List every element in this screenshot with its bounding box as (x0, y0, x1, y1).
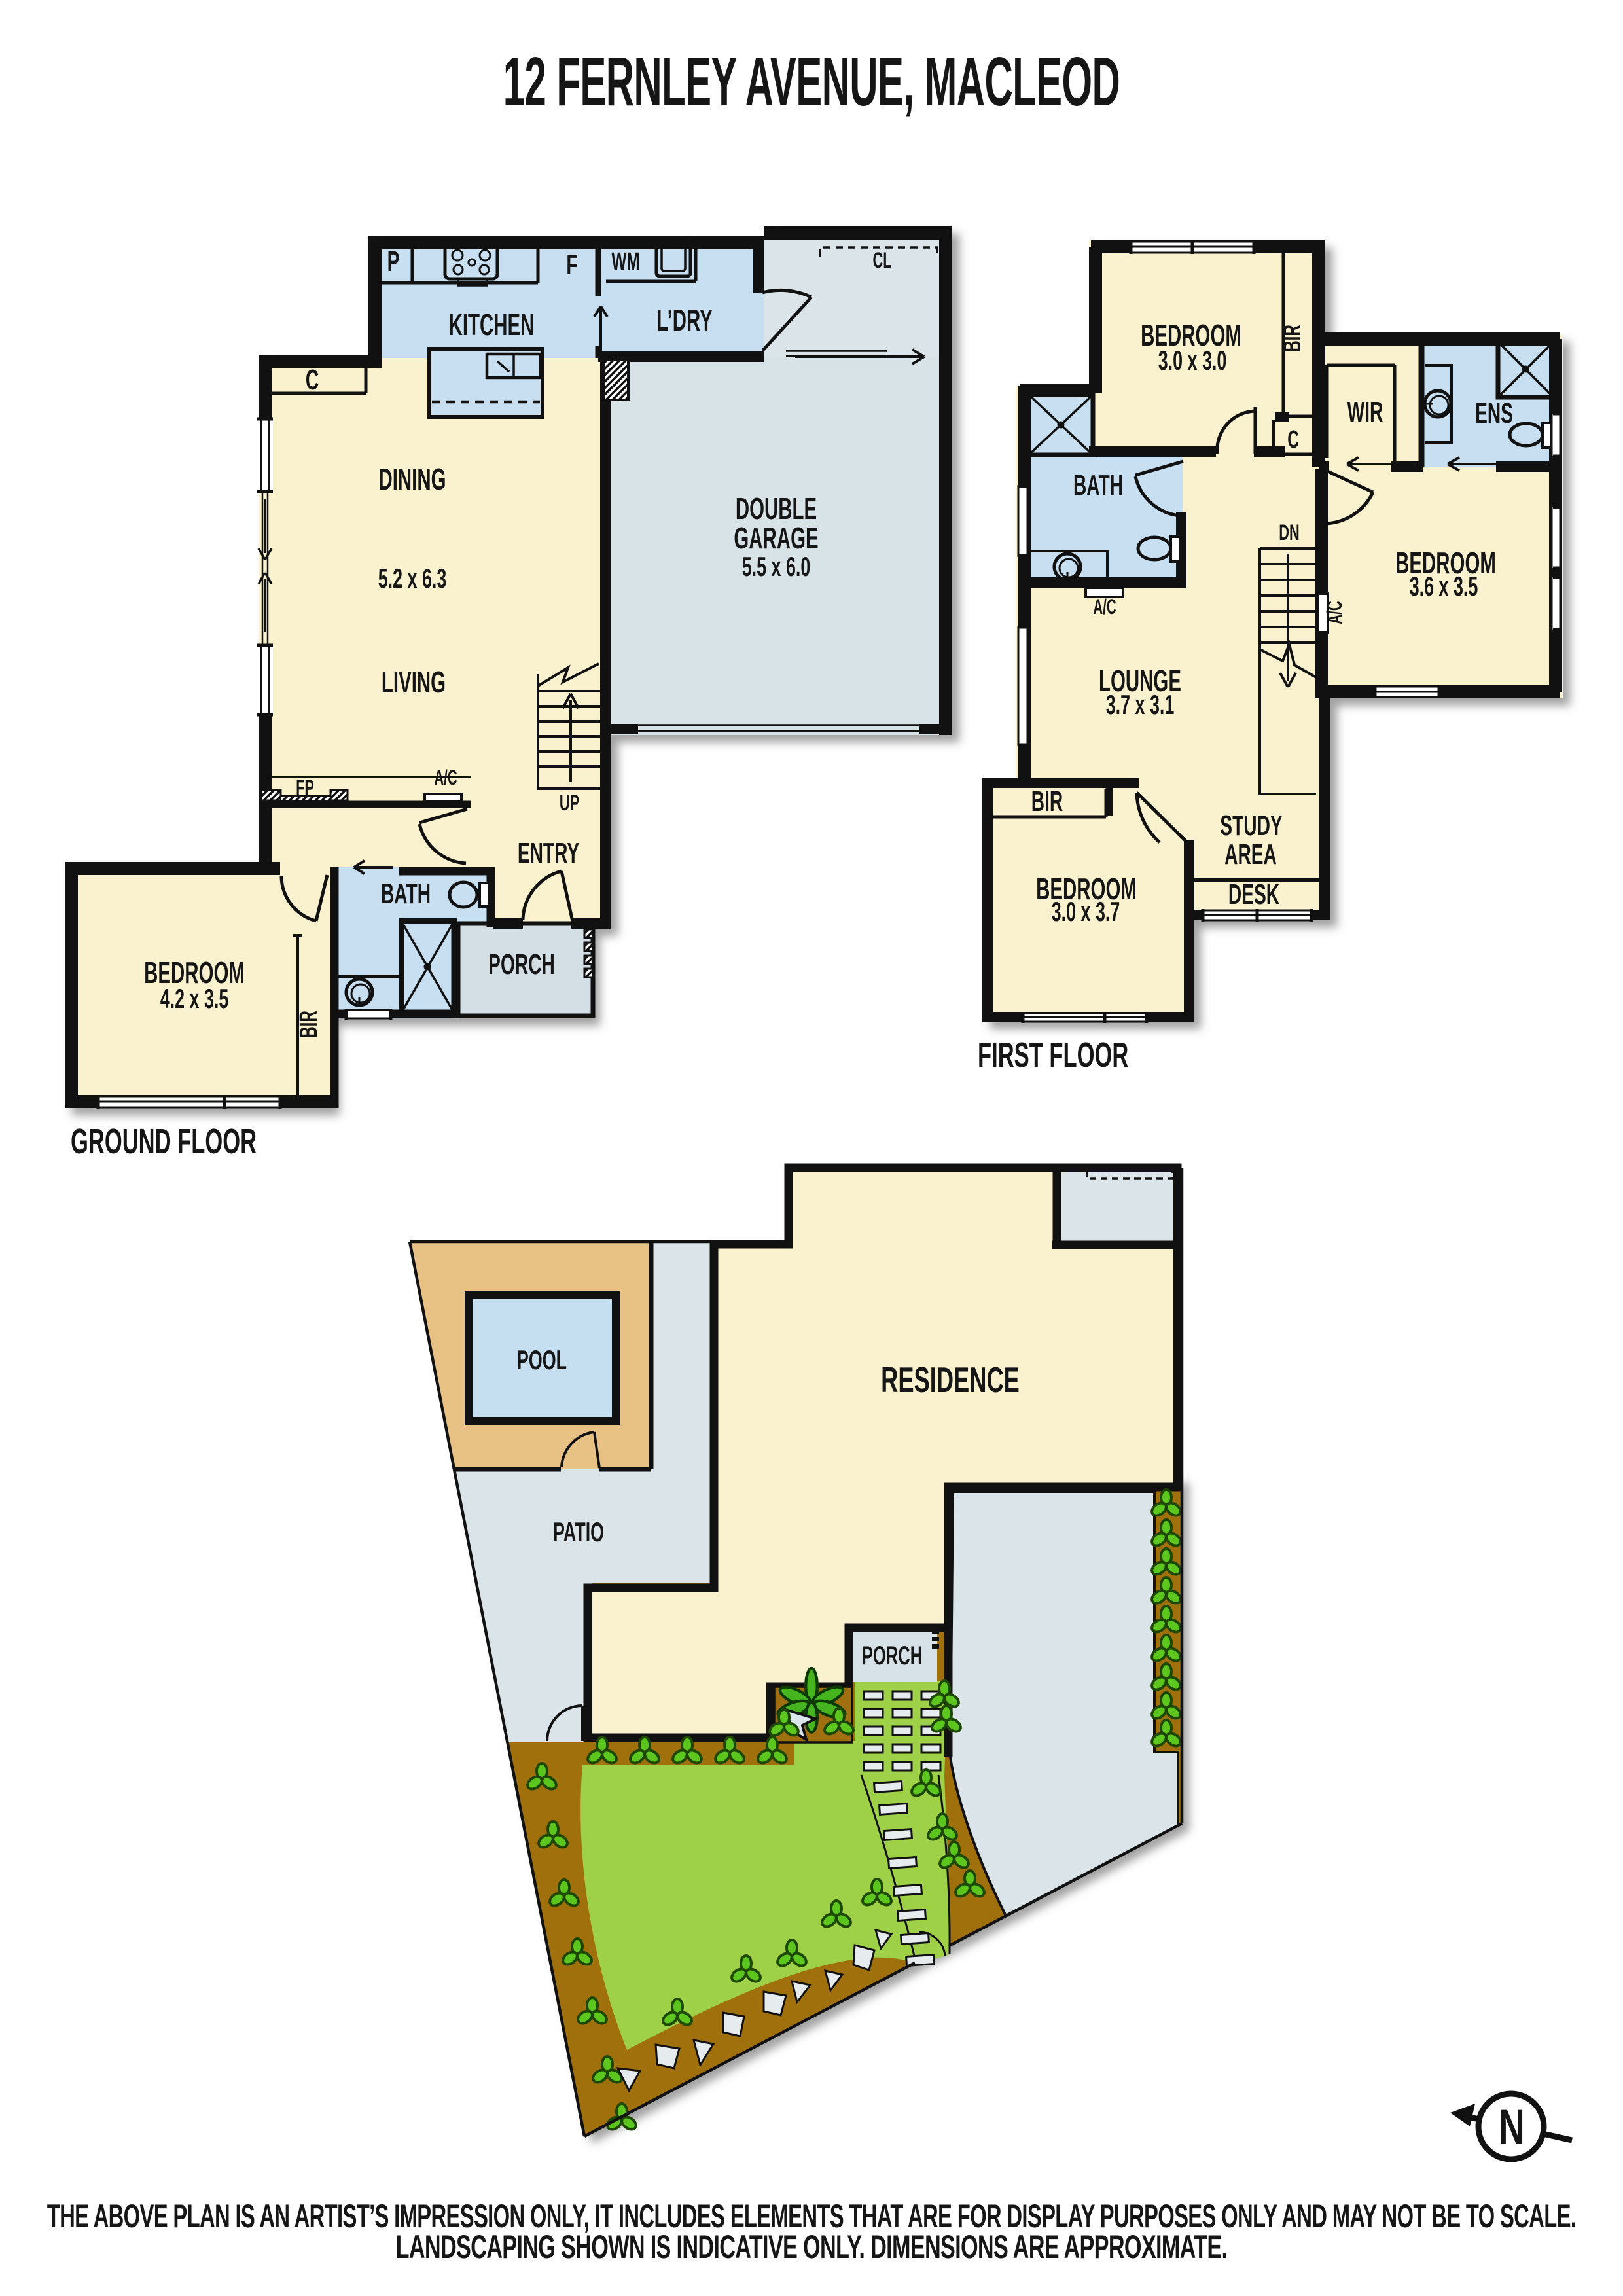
svg-text:BIR: BIR (294, 1011, 322, 1038)
svg-text:5.5 x 6.0: 5.5 x 6.0 (742, 552, 811, 582)
svg-text:BIR: BIR (1277, 325, 1306, 352)
svg-text:KITCHEN: KITCHEN (449, 309, 535, 342)
svg-text:UP: UP (560, 791, 579, 816)
svg-text:F: F (566, 249, 577, 281)
svg-text:BIR: BIR (1031, 785, 1063, 817)
svg-text:FP: FP (296, 776, 314, 800)
svg-text:RESIDENCE: RESIDENCE (881, 1359, 1020, 1399)
svg-text:BATH: BATH (381, 878, 431, 910)
svg-text:WM: WM (611, 247, 639, 275)
svg-text:DESK: DESK (1228, 878, 1279, 910)
svg-text:3.7 x 3.1: 3.7 x 3.1 (1106, 690, 1175, 720)
svg-text:3.0 x 3.0: 3.0 x 3.0 (1158, 346, 1227, 376)
svg-text:DOUBLE: DOUBLE (736, 493, 817, 526)
svg-text:BATH: BATH (1073, 469, 1123, 501)
svg-text:FIRST FLOOR: FIRST FLOOR (978, 1035, 1128, 1075)
svg-text:PORCH: PORCH (488, 948, 555, 980)
svg-text:3.0 x 3.7: 3.0 x 3.7 (1052, 897, 1120, 927)
svg-text:P: P (387, 245, 400, 278)
svg-text:ENTRY: ENTRY (518, 837, 580, 869)
svg-text:C: C (306, 364, 319, 396)
svg-text:3.6 x 3.5: 3.6 x 3.5 (1410, 571, 1478, 601)
svg-text:A/C: A/C (1323, 601, 1346, 624)
svg-text:4.2 x 3.5: 4.2 x 3.5 (160, 984, 229, 1014)
svg-text:CL: CL (872, 248, 891, 273)
svg-text:ENS: ENS (1475, 397, 1513, 429)
svg-text:WIR: WIR (1347, 396, 1383, 428)
svg-text:A/C: A/C (1093, 595, 1116, 619)
svg-text:DINING: DINING (378, 463, 446, 497)
svg-text:DN: DN (1279, 520, 1299, 545)
svg-text:12 FERNLEY AVENUE, MACLEOD: 12 FERNLEY AVENUE, MACLEOD (503, 43, 1120, 120)
svg-text:STUDY: STUDY (1220, 810, 1283, 842)
svg-text:GARAGE: GARAGE (734, 522, 818, 556)
svg-text:5.2 x 6.3: 5.2 x 6.3 (378, 564, 447, 594)
svg-text:LIVING: LIVING (382, 666, 446, 700)
svg-text:L’DRY: L’DRY (656, 304, 713, 338)
svg-text:PORCH: PORCH (862, 1641, 922, 1670)
svg-text:PATIO: PATIO (553, 1517, 604, 1547)
svg-text:POOL: POOL (517, 1345, 567, 1375)
svg-text:GROUND FLOOR: GROUND FLOOR (71, 1121, 257, 1161)
svg-text:A/C: A/C (434, 766, 457, 789)
svg-text:LANDSCAPING SHOWN IS INDICATIV: LANDSCAPING SHOWN IS INDICATIVE ONLY. DI… (396, 2229, 1228, 2266)
svg-text:N: N (1499, 2100, 1525, 2155)
svg-text:AREA: AREA (1224, 838, 1277, 870)
svg-text:C: C (1287, 425, 1299, 453)
